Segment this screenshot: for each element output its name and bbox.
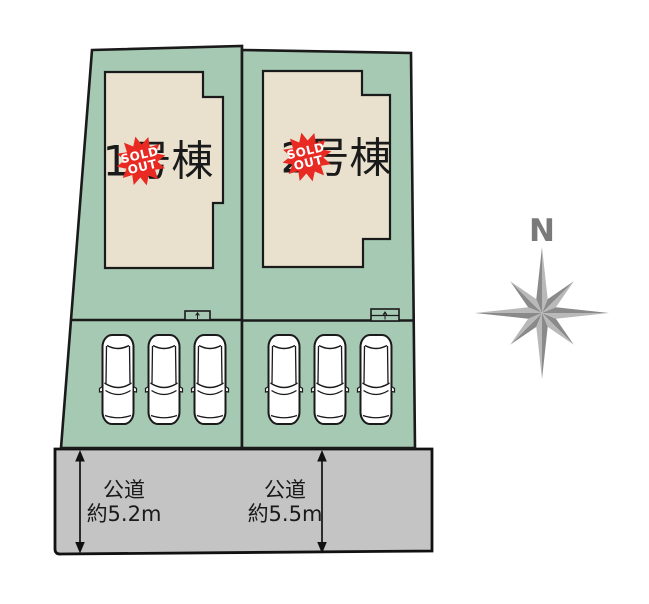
site-plan-canvas: 公道 約5.2m 公道 約5.5m 1号棟 SOLD OUT [0,0,649,600]
compass-north-label: N [529,213,555,249]
road-strip: 公道 約5.2m 公道 約5.5m [55,449,432,554]
road-label-1-type: 公道 [103,478,145,502]
road-label-2-width: 約5.5m [248,502,323,526]
lot-1: 1号棟 SOLD OUT [61,46,242,448]
road-label-2-type: 公道 [264,478,306,502]
site-plan: 公道 約5.2m 公道 約5.5m 1号棟 SOLD OUT [0,0,649,600]
road-label-1-width: 約5.2m [87,502,162,526]
parking-area-2 [266,335,395,424]
car-icon [266,335,303,424]
lot-2: 2号棟 SOLD OUT [242,50,415,448]
car-icon [146,335,183,424]
parking-area-1 [100,335,229,424]
entrance-marker-2 [371,309,399,321]
car-icon [100,335,137,424]
entrance-marker-1 [185,311,210,320]
car-icon [312,335,349,424]
car-icon [358,335,395,424]
car-icon [192,335,229,424]
compass-rose-icon: N [475,213,609,379]
